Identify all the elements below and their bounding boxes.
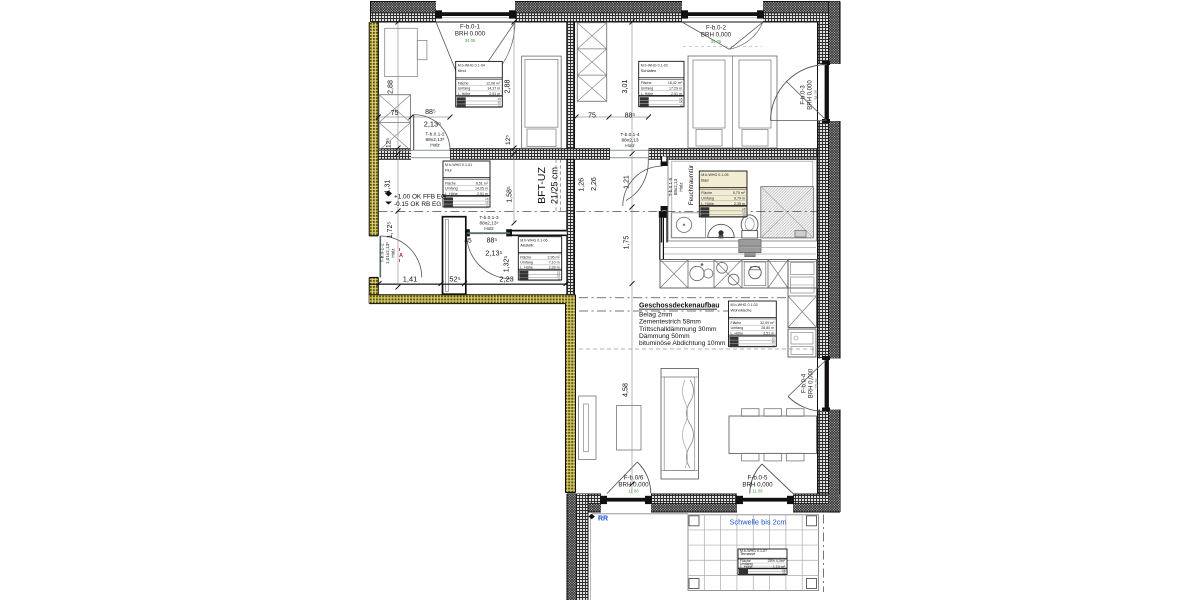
svg-text:BFT-UZ: BFT-UZ	[536, 167, 548, 204]
svg-text:Wohnküche: Wohnküche	[731, 307, 753, 312]
svg-text:F-b.0-3: F-b.0-3	[801, 85, 807, 105]
svg-text:88x2,13: 88x2,13	[621, 138, 638, 144]
svg-text:BRH 0.000: BRH 0.000	[455, 31, 486, 38]
svg-text:Abstellr.: Abstellr.	[520, 243, 534, 248]
svg-text:F-b.0/6: F-b.0/6	[624, 475, 644, 482]
svg-text:1,72⁵: 1,72⁵	[387, 222, 394, 239]
svg-text:3,01: 3,01	[620, 80, 629, 94]
svg-text:+1.00 OK FFB EG: +1.00 OK FFB EG	[394, 193, 446, 200]
svg-text:11 08: 11 08	[752, 488, 763, 493]
svg-text:Flur: Flur	[445, 168, 453, 173]
svg-text:Belag 2mm: Belag 2mm	[639, 311, 673, 318]
svg-text:2,95 m²: 2,95 m²	[548, 256, 561, 260]
svg-text:Holz: Holz	[430, 143, 440, 149]
svg-text:12,08 m²: 12,08 m²	[486, 81, 501, 85]
svg-text:Fläche: Fläche	[520, 256, 531, 260]
svg-text:12⁵: 12⁵	[505, 135, 512, 145]
svg-text:Fläche: Fläche	[458, 81, 469, 85]
svg-text:M.b-WHG 0.1-05: M.b-WHG 0.1-05	[701, 173, 728, 177]
svg-text:4,58: 4,58	[621, 383, 630, 397]
svg-text:Umfang: Umfang	[701, 196, 714, 200]
svg-text:F-b.0-4: F-b.0-4	[802, 373, 808, 393]
svg-text:Holz: Holz	[484, 226, 494, 232]
svg-text:2,23: 2,23	[499, 275, 513, 284]
svg-text:BRH 0,000: BRH 0,000	[701, 32, 732, 39]
svg-text:1,21: 1,21	[624, 175, 631, 189]
svg-text:25% 4,4m²: 25% 4,4m²	[768, 559, 786, 563]
svg-text:2,13⁵: 2,13⁵	[424, 120, 441, 129]
svg-text:32,09 m²: 32,09 m²	[760, 321, 775, 325]
svg-text:11 08: 11 08	[628, 488, 639, 493]
svg-text:Terrasse: Terrasse	[740, 551, 756, 556]
svg-text:34 05: 34 05	[465, 38, 476, 43]
svg-text:Dämmung 50mm: Dämmung 50mm	[639, 333, 690, 340]
svg-text:Fläche: Fläche	[731, 321, 742, 325]
svg-text:T-b.0.1-3: T-b.0.1-3	[479, 215, 499, 221]
svg-text:M.b-WHG 0.1-02: M.b-WHG 0.1-02	[641, 63, 668, 67]
svg-text:2,13⁵: 2,13⁵	[485, 249, 502, 258]
svg-text:34 05: 34 05	[813, 89, 818, 100]
svg-text:1,26: 1,26	[579, 178, 586, 192]
svg-text:75: 75	[391, 110, 399, 117]
svg-text:45: 45	[464, 238, 472, 245]
svg-text:Schwelle bis 2cm: Schwelle bis 2cm	[729, 518, 786, 527]
svg-text:Holz: Holz	[679, 182, 684, 192]
svg-text:T-b.0.1-4: T-b.0.1-4	[620, 132, 640, 138]
svg-text:M.b-WHG 0.1-04: M.b-WHG 0.1-04	[458, 63, 485, 67]
svg-text:T-b.0.1-2: T-b.0.1-2	[425, 132, 445, 138]
svg-text:bituminöse Abdichtung 10mm: bituminöse Abdichtung 10mm	[639, 340, 726, 347]
svg-text:T-b.0-1-1: T-b.0-1-1	[380, 243, 385, 262]
svg-text:Zementestrich 58mm: Zementestrich 58mm	[639, 319, 701, 326]
svg-text:Fläche: Fläche	[641, 81, 652, 85]
svg-text:F-b.0-5: F-b.0-5	[748, 475, 769, 482]
svg-text:8,51 m²: 8,51 m²	[476, 181, 489, 185]
svg-text:52⁵: 52⁵	[449, 275, 460, 284]
svg-text:18,42 m²: 18,42 m²	[668, 81, 683, 85]
svg-text:75: 75	[588, 113, 596, 120]
svg-text:88x2,13: 88x2,13	[673, 178, 678, 195]
svg-text:88⁵: 88⁵	[487, 238, 498, 245]
svg-text:7,10 m: 7,10 m	[549, 261, 560, 265]
svg-text:Holz: Holz	[625, 143, 635, 149]
svg-text:1,75: 1,75	[624, 236, 631, 250]
svg-text:88⁵: 88⁵	[625, 113, 636, 120]
svg-text:Feuchtraumtür: Feuchtraumtür	[688, 165, 695, 205]
svg-text:Holz: Holz	[391, 248, 396, 258]
svg-text:Umfang: Umfang	[731, 326, 744, 330]
svg-text:88x2,13⁹: 88x2,13⁹	[479, 221, 498, 227]
svg-text:12⁵: 12⁵	[386, 138, 393, 148]
svg-text:Kind: Kind	[458, 68, 466, 73]
svg-text:14,05 m: 14,05 m	[475, 187, 488, 191]
svg-text:1,01x2,13⁵: 1,01x2,13⁵	[385, 242, 390, 264]
svg-text:Umfang: Umfang	[458, 87, 471, 91]
svg-text:2,26: 2,26	[591, 177, 598, 191]
svg-text:Geschossdeckenaufbau: Geschossdeckenaufbau	[639, 303, 720, 310]
svg-text:1,32⁵: 1,32⁵	[504, 256, 511, 273]
svg-text:Trittschalldämmung 30mm: Trittschalldämmung 30mm	[639, 326, 717, 333]
svg-text:88⁵: 88⁵	[425, 109, 436, 116]
svg-text:Fläche: Fläche	[445, 181, 456, 185]
svg-text:9,79 m: 9,79 m	[734, 196, 745, 200]
svg-text:Umfang: Umfang	[445, 187, 458, 191]
svg-text:1,41: 1,41	[403, 275, 417, 284]
svg-text:Umfang: Umfang	[520, 261, 533, 265]
svg-text:Umfang: Umfang	[641, 87, 654, 91]
svg-text:2,88: 2,88	[385, 80, 394, 94]
svg-text:1,58⁵: 1,58⁵	[507, 186, 514, 203]
svg-text:17,29 m: 17,29 m	[669, 87, 682, 91]
svg-text:F-b.0-2: F-b.0-2	[706, 25, 727, 32]
svg-text:34 05: 34 05	[711, 39, 722, 44]
svg-text:2,88: 2,88	[503, 80, 512, 94]
svg-text:88x2,13⁵: 88x2,13⁵	[425, 137, 444, 143]
svg-text:A: A	[399, 253, 403, 259]
svg-text:M.b-WHG 0.1-01: M.b-WHG 0.1-01	[445, 163, 472, 167]
svg-text:Fläche: Fläche	[701, 191, 712, 195]
svg-text:5,75 m²: 5,75 m²	[733, 191, 746, 195]
svg-text:-0.15 OK RB EG: -0.15 OK RB EG	[394, 201, 441, 208]
svg-text:22 05: 22 05	[814, 378, 819, 389]
svg-text:RR: RR	[598, 516, 608, 523]
svg-text:21/25 cm: 21/25 cm	[550, 167, 560, 204]
svg-text:14,37 m: 14,37 m	[487, 87, 500, 91]
svg-text:T-b.0.1-5: T-b.0.1-5	[668, 177, 673, 196]
svg-text:28,80 m: 28,80 m	[761, 326, 774, 330]
svg-text:F-b.0-1: F-b.0-1	[460, 24, 481, 31]
svg-text:Schlafen: Schlafen	[641, 68, 657, 73]
svg-text:M.b-WHG 0.1-03: M.b-WHG 0.1-03	[731, 303, 758, 307]
svg-text:Bad: Bad	[701, 178, 708, 183]
